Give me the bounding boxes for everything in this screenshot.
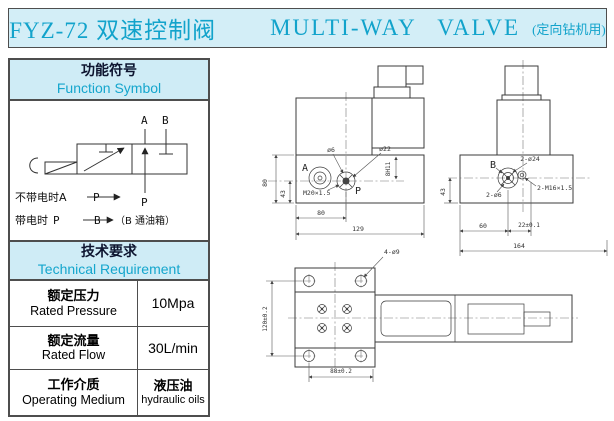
top-ports <box>318 305 352 333</box>
top-dim-120: 120±0.2 <box>262 306 269 332</box>
front-dim-80h: 80 <box>317 209 325 217</box>
function-symbol-box: A B P 不带电时A P 带电时 P B （B 通油箱） <box>8 99 210 242</box>
technical-table: 额定压力 Rated Pressure 10Mpa 额定流量 Rated Flo… <box>8 279 210 417</box>
note2-text: 带电时 <box>15 214 48 227</box>
front-dia22-label: ø22 <box>379 145 391 153</box>
front-view: A P ø6 ø22 M20×1.5 80 43 8H11 80 129 <box>261 66 424 240</box>
datasheet-page: FYZ-72 双速控制阀 MULTI-WAY VALVE (定向钻机用) 功能符… <box>0 0 614 421</box>
schematic-port-a-label: A <box>141 114 148 127</box>
rated-flow-value: 30L/min <box>138 326 208 369</box>
operating-medium-value: 液压油 hydraulic oils <box>138 369 208 415</box>
top-holes-label: 4-ø9 <box>384 248 400 256</box>
function-symbol-title-en: Function Symbol <box>57 80 161 98</box>
page-title: FYZ-72 双速控制阀 <box>9 11 216 45</box>
top-dim-88: 88±0.2 <box>330 368 352 375</box>
technical-title-en: Technical Requirement <box>38 261 180 279</box>
front-dim-8h11: 8H11 <box>385 161 392 176</box>
operating-medium-cn: 工作介质 <box>47 377 99 393</box>
side-dia6-label: 2-ø6 <box>486 191 502 199</box>
side-dim-43: 43 <box>439 188 447 196</box>
note2-suffix: （B 通油箱） <box>115 214 175 227</box>
front-dim-129: 129 <box>352 225 364 233</box>
top-view: 4-ø9 120±0.2 88±0.2 <box>262 248 578 382</box>
schematic-port-p-label: P <box>141 196 148 209</box>
title-suffix: (定向钻机用) <box>532 19 606 38</box>
rated-flow-en: Rated Flow <box>42 348 105 363</box>
title-bar: FYZ-72 双速控制阀 MULTI-WAY VALVE (定向钻机用) <box>8 8 607 48</box>
note2-port-b: B <box>94 214 101 227</box>
schematic-note-line1: 不带电时A P <box>15 191 120 204</box>
side-dim-22: 22±0.1 <box>518 222 540 229</box>
side-dim-164: 164 <box>513 242 525 250</box>
function-symbol-title-cn: 功能符号 <box>81 62 137 80</box>
front-dia6-label: ø6 <box>327 146 335 154</box>
valve-symbol <box>30 129 187 193</box>
engineering-drawings: A P ø6 ø22 M20×1.5 80 43 8H11 80 129 <box>230 50 614 421</box>
note2-port-p: P <box>53 214 60 227</box>
front-thread-label: M20×1.5 <box>303 189 330 197</box>
rated-flow-label: 额定流量 Rated Flow <box>10 326 138 369</box>
side-dia24-label: 2-ø24 <box>520 155 540 163</box>
schematic-port-b-label: B <box>162 114 169 127</box>
operating-medium-label: 工作介质 Operating Medium <box>10 369 138 415</box>
side-small-port <box>518 171 526 179</box>
side-view: B 2-ø24 2-M16×1.5 2-ø6 43 60 22±0.1 164 <box>439 60 607 256</box>
rated-pressure-en: Rated Pressure <box>30 304 117 319</box>
rated-flow-cn: 额定流量 <box>47 333 99 349</box>
side-port-b-label: B <box>490 160 496 171</box>
technical-title-cn: 技术要求 <box>81 243 137 261</box>
front-port-p-label: P <box>355 186 361 197</box>
side-thread-label: 2-M16×1.5 <box>537 184 572 192</box>
title-cn: 双速控制阀 <box>96 18 216 43</box>
front-dim-80v: 80 <box>261 179 269 187</box>
rated-pressure-cn: 额定压力 <box>47 288 99 304</box>
title-model: FYZ-72 <box>9 18 89 43</box>
hydraulic-schematic: A B P 不带电时A P 带电时 P B （B 通油箱） <box>10 101 208 240</box>
title-en: MULTI-WAY VALVE <box>270 15 520 41</box>
spring-symbol <box>30 158 38 173</box>
operating-medium-en: Operating Medium <box>22 393 125 408</box>
port-a <box>309 167 331 189</box>
rated-pressure-label: 额定压力 Rated Pressure <box>10 281 138 326</box>
note1-text: 不带电时A <box>15 191 67 204</box>
side-dim-60: 60 <box>479 222 487 230</box>
front-port-a-label: A <box>302 163 308 174</box>
note1-port: P <box>93 191 100 204</box>
technical-requirement-header: 技术要求 Technical Requirement <box>8 240 210 281</box>
rated-pressure-value: 10Mpa <box>138 281 208 326</box>
front-dim-43: 43 <box>279 190 287 198</box>
function-symbol-header: 功能符号 Function Symbol <box>8 58 210 101</box>
schematic-note-line2: 带电时 P B （B 通油箱） <box>15 214 175 227</box>
